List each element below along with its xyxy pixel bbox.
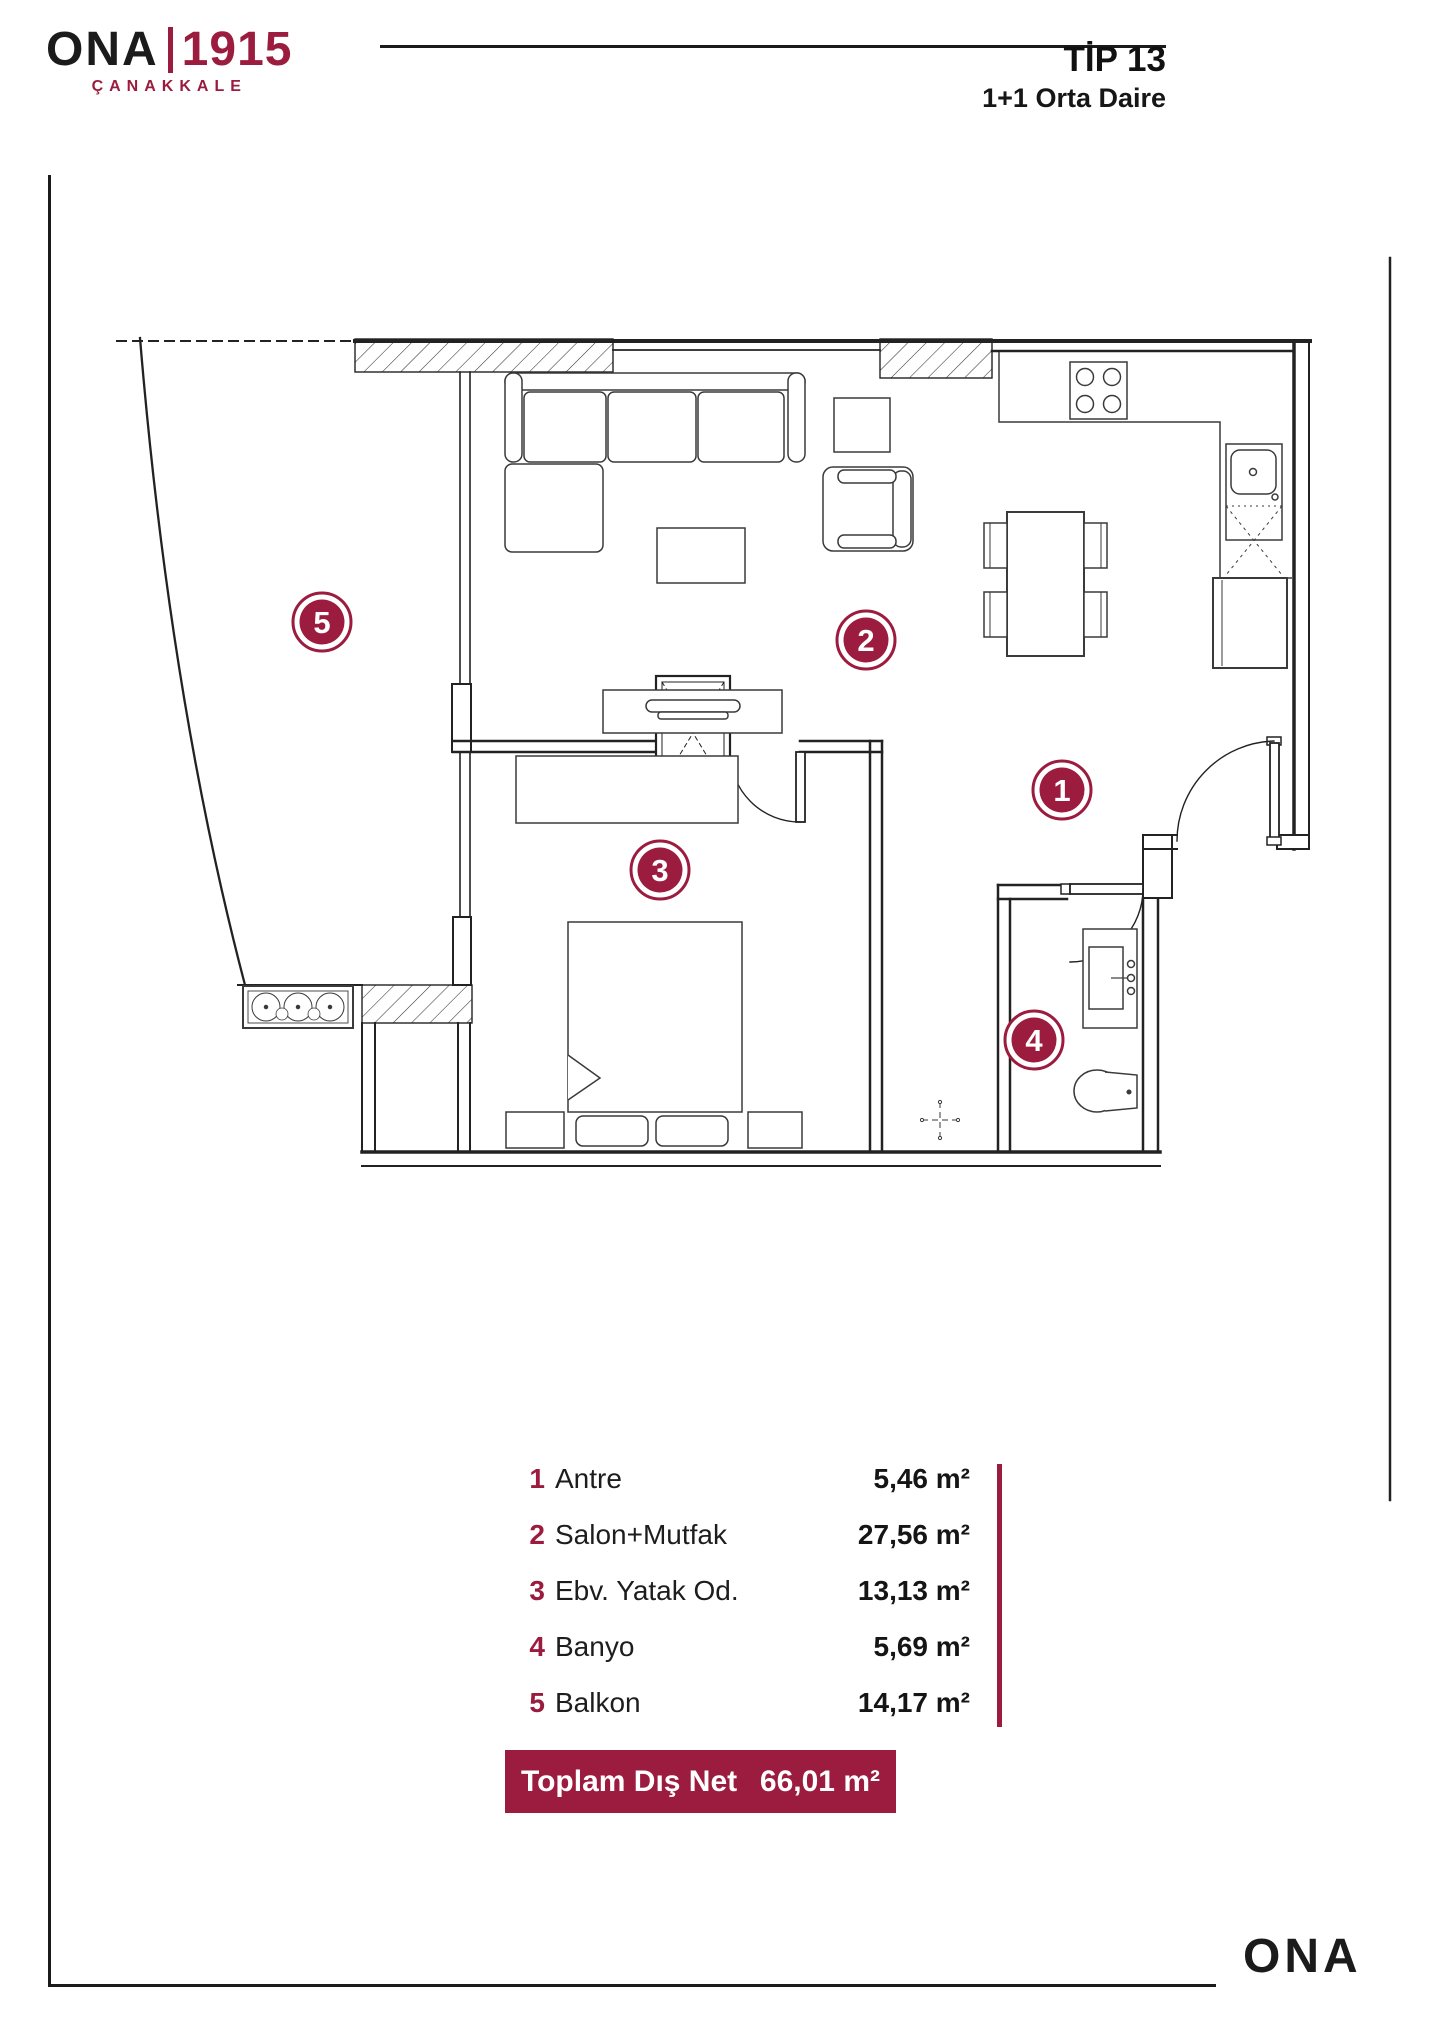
- legend-accent-rule: [997, 1464, 1002, 1727]
- side-table: [834, 398, 890, 452]
- legend-room-number: 4: [505, 1630, 545, 1664]
- legend-room-area: 27,56 m²: [858, 1518, 970, 1552]
- fridge: [1213, 578, 1287, 668]
- room-legend: 1 Antre 5,46 m² 2 Salon+Mutfak 27,56 m² …: [505, 1462, 970, 1742]
- bed: [506, 922, 802, 1148]
- total-label: Toplam Dış Net: [521, 1765, 737, 1799]
- tv-unit: [603, 690, 782, 733]
- room-marker-1: 1: [1033, 761, 1091, 819]
- svg-text:4: 4: [1025, 1023, 1043, 1058]
- svg-text:1: 1: [1053, 773, 1070, 808]
- nightstand-left: [506, 1112, 564, 1148]
- room-marker-3: 3: [631, 841, 689, 899]
- legend-room-name: Balkon: [555, 1686, 858, 1720]
- bedroom-door: [730, 752, 805, 822]
- svg-text:2: 2: [857, 623, 874, 658]
- stove: [1070, 362, 1127, 419]
- svg-text:5: 5: [313, 605, 330, 640]
- armchair: [823, 467, 913, 551]
- wardrobe: [516, 756, 738, 823]
- room-marker-4: 4: [1005, 1011, 1063, 1069]
- frame-bottom-line: [48, 1984, 1216, 1987]
- legend-room-area: 14,17 m²: [858, 1686, 970, 1720]
- toilet: [1074, 1070, 1137, 1112]
- footer-brand-logo: ONA: [1243, 1933, 1362, 1981]
- svg-text:3: 3: [651, 853, 668, 888]
- legend-room-name: Ebv. Yatak Od.: [555, 1574, 858, 1608]
- legend-room-area: 13,13 m²: [858, 1574, 970, 1608]
- legend-room-name: Salon+Mutfak: [555, 1518, 858, 1552]
- planter: [243, 986, 353, 1028]
- legend-room-name: Banyo: [555, 1630, 874, 1664]
- coffee-table: [657, 528, 745, 583]
- hatched-wall-top-right: [880, 339, 992, 378]
- furniture: [243, 352, 1292, 1148]
- legend-room-number: 5: [505, 1686, 545, 1720]
- hatched-wall-top-left: [355, 339, 613, 372]
- total-bar: Toplam Dış Net 66,01 m²: [505, 1750, 896, 1813]
- kitchen-sink: [1226, 444, 1282, 575]
- bathroom-vanity: [1083, 929, 1137, 1028]
- floor-plan: 1 2 3 4 5: [0, 0, 1440, 1600]
- legend-room-area: 5,46 m²: [874, 1462, 971, 1496]
- brochure-page: ONA 1915 ÇANAKKALE TİP 13 1+1 Orta Daire: [0, 0, 1440, 2036]
- legend-room-area: 5,69 m²: [874, 1630, 971, 1664]
- nightstand-right: [748, 1112, 802, 1148]
- entrance-door-swing: [1177, 741, 1274, 841]
- legend-room-number: 2: [505, 1518, 545, 1552]
- legend-row: 2 Salon+Mutfak 27,56 m²: [505, 1518, 970, 1552]
- legend-row: 5 Balkon 14,17 m²: [505, 1686, 970, 1720]
- legend-row: 1 Antre 5,46 m²: [505, 1462, 970, 1496]
- legend-row: 4 Banyo 5,69 m²: [505, 1630, 970, 1664]
- room-marker-5: 5: [293, 593, 351, 651]
- dining-table: [984, 512, 1107, 656]
- hatched-wall-bottom-left: [362, 985, 472, 1023]
- total-value: 66,01 m²: [760, 1765, 880, 1799]
- bedroom-door-swing: [730, 752, 800, 822]
- balcony-curve: [140, 338, 245, 985]
- sofa: [505, 373, 805, 552]
- entrance-door: [1177, 737, 1281, 845]
- legend-room-name: Antre: [555, 1462, 874, 1496]
- room-marker-2: 2: [837, 611, 895, 669]
- legend-room-number: 3: [505, 1574, 545, 1608]
- drain-symbol: [920, 1100, 959, 1139]
- legend-room-number: 1: [505, 1462, 545, 1496]
- legend-row: 3 Ebv. Yatak Od. 13,13 m²: [505, 1574, 970, 1608]
